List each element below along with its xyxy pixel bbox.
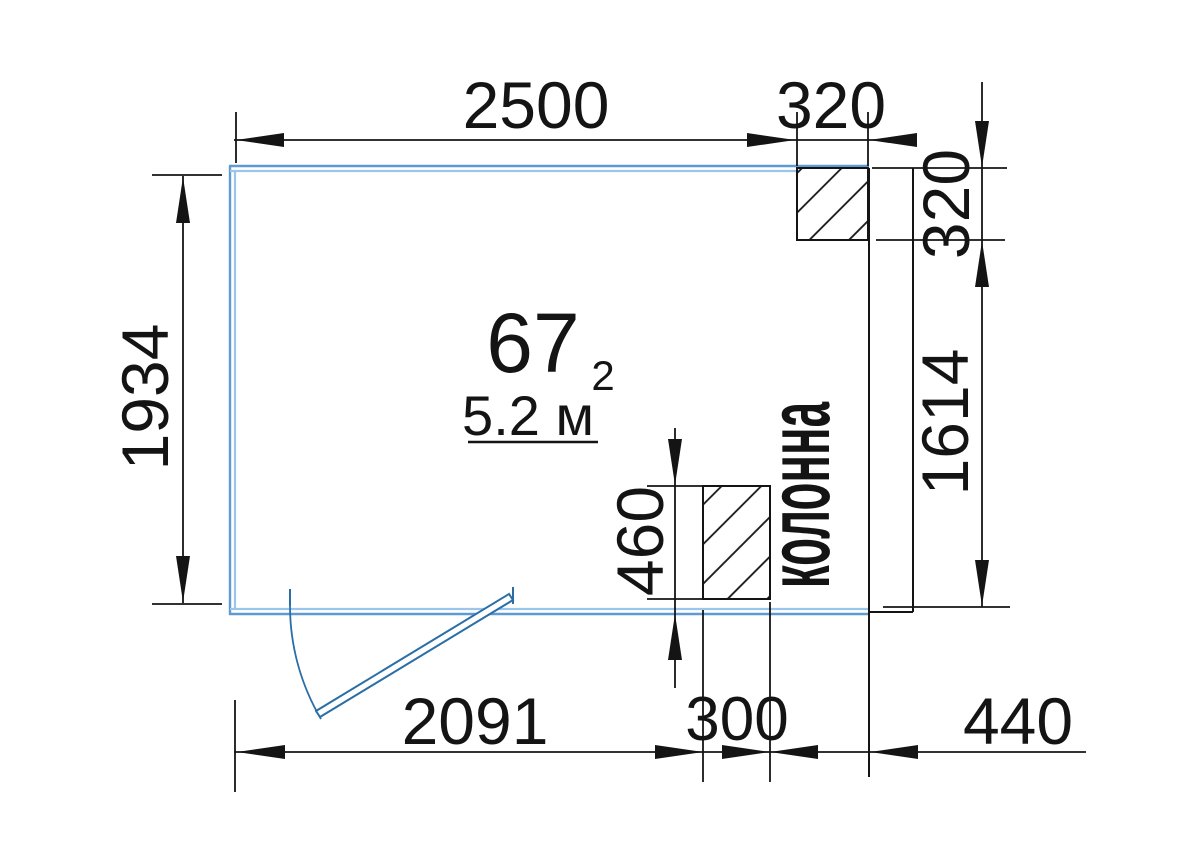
dim-right-wall: 1614 <box>908 349 982 496</box>
floor-plan: 2500 320 1934 320 1614 460 2091 300 440 … <box>0 0 1200 849</box>
arrow-left-top <box>176 177 190 223</box>
floor-plan-drawing: 2500 320 1934 320 1614 460 2091 300 440 … <box>0 0 1200 849</box>
arrow-col-bottom <box>668 614 682 660</box>
room-number: 67 <box>486 296 579 390</box>
corner-column <box>797 168 868 240</box>
column-label: колонна <box>750 401 848 588</box>
arrow-top-w <box>236 133 284 147</box>
dim-column-depth: 460 <box>603 486 677 596</box>
arrow-col-top <box>668 439 682 485</box>
dim-top-width: 2500 <box>463 68 610 142</box>
dim-bottom-column: 300 <box>685 685 788 754</box>
arrow-left-bottom <box>176 556 190 602</box>
room-label: 67 5.2 м 2 <box>462 296 615 447</box>
right-wall-strip <box>869 168 913 777</box>
arrow-bottom-1 <box>237 745 285 759</box>
dim-left-height: 1934 <box>108 324 182 471</box>
dim-right-column: 320 <box>909 149 983 259</box>
room-area: 5.2 м <box>462 384 594 447</box>
arrow-right-3 <box>975 560 989 606</box>
arrow-bottom-5 <box>870 745 918 759</box>
door-swing-arc <box>290 606 321 719</box>
dim-top-column: 320 <box>776 68 886 142</box>
dim-bottom-right: 440 <box>963 684 1073 758</box>
room-area-exponent: 2 <box>591 352 614 399</box>
dim-bottom-door: 2091 <box>402 684 549 758</box>
